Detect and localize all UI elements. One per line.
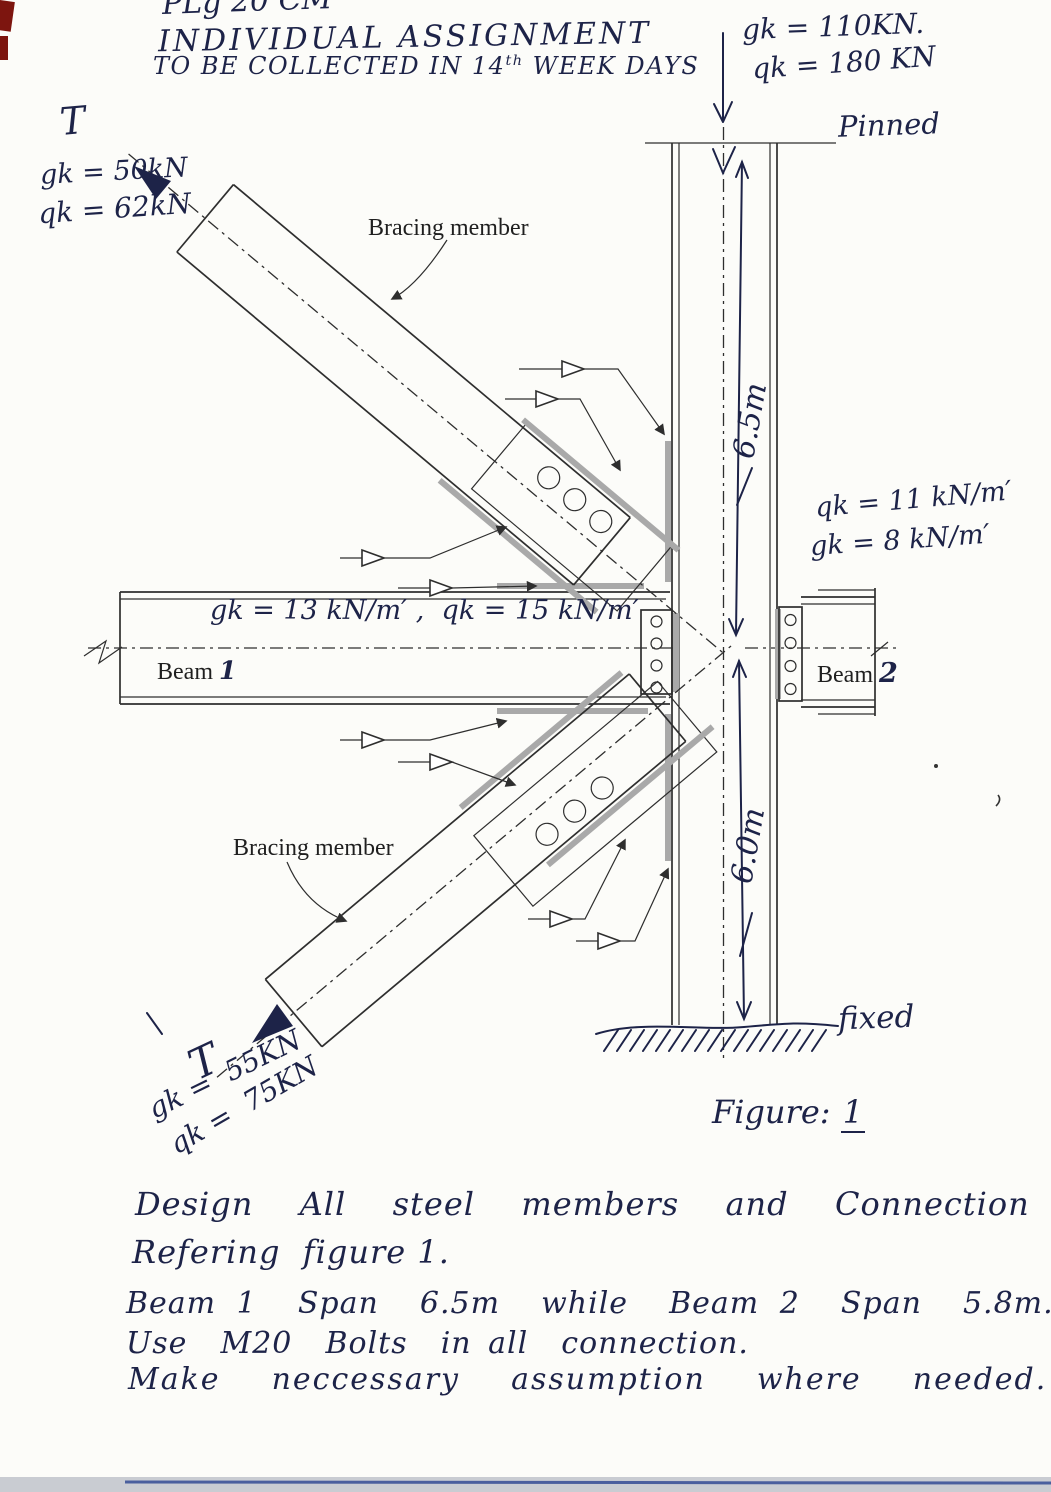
note-line-5: Make neccessary assumption where needed.	[128, 1364, 1047, 1396]
upper-gusset-bolts	[533, 462, 616, 537]
ground-hatching	[604, 1030, 826, 1051]
beam1-number: 1	[219, 656, 236, 685]
figure-caption: Figure: 1	[712, 1096, 865, 1130]
ground-line	[596, 1023, 838, 1034]
pinned-support-label: Pinned	[837, 108, 940, 142]
note-line-1: Design All steel members and Connection	[135, 1188, 1030, 1222]
bracing-member-upper-label: Bracing member	[368, 216, 529, 240]
note-line-4: Use M20 Bolts in all connection.	[126, 1328, 749, 1360]
beam-2	[745, 588, 898, 716]
upper-gusset-plate	[472, 421, 674, 611]
lower-gusset-bolts	[532, 773, 618, 850]
beam2-bolts	[785, 615, 796, 695]
pen-comma	[996, 795, 1000, 806]
beam2-label: Beam 2	[817, 660, 898, 688]
upper-brace-force-t: T	[58, 101, 87, 143]
fixed-support-label: fixed	[837, 1001, 914, 1036]
beam1-load-text: gk = 13 kN/m′ , qk = 15 kN/m′	[210, 597, 639, 625]
pen-dot	[934, 764, 938, 768]
figure-number: 1	[841, 1093, 865, 1133]
bracing-lower-label-arrow	[287, 862, 346, 921]
beam1-label: Beam 1	[157, 658, 236, 684]
beam2-number: 2	[879, 658, 898, 689]
note-line-2: Refering figure 1.	[132, 1236, 450, 1270]
column-top-load-gk: gk = 110KN.	[742, 9, 925, 45]
bracing-member-lower-label: Bracing member	[233, 836, 394, 860]
lower-gusset-plate	[474, 681, 717, 906]
note-line-3: Beam 1 Span 6.5m while Beam 2 Span 5.8m.	[126, 1288, 1051, 1320]
bracing-upper-label-arrow	[392, 240, 447, 299]
beam1-bolts	[651, 616, 662, 693]
superscript-th: th	[505, 53, 523, 69]
scanned-assignment-page: PLg 20 CM INDIVIDUAL ASSIGNMENT TO BE CO…	[0, 0, 1051, 1492]
beam2-end-plate	[779, 607, 802, 701]
header-line-3: TO BE COLLECTED IN 14th WEEK DAYS	[153, 54, 699, 79]
